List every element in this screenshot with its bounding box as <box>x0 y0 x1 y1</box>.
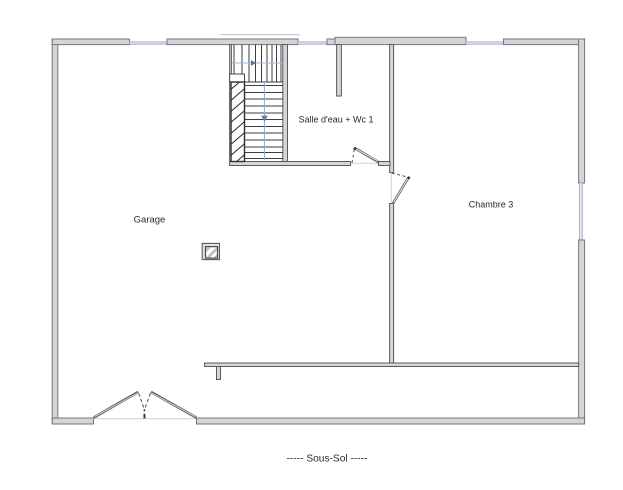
svg-text:----- Sous-Sol -----: ----- Sous-Sol ----- <box>287 454 368 465</box>
svg-text:Garage: Garage <box>134 214 166 225</box>
svg-text:Salle d'eau + Wc 1: Salle d'eau + Wc 1 <box>298 114 373 124</box>
svg-text:Chambre 3: Chambre 3 <box>469 200 514 210</box>
